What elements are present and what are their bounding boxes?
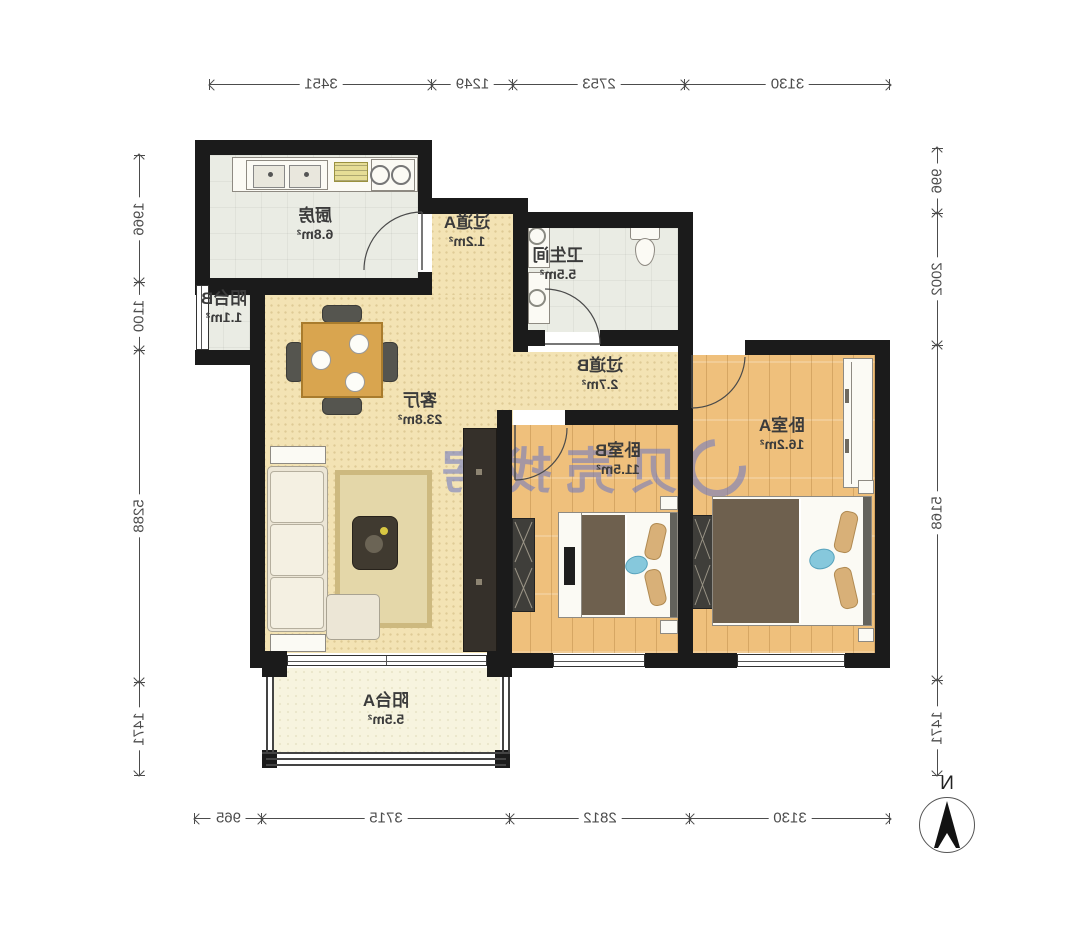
dim-right-4: 1471 (139, 682, 140, 775)
dim-value: 1100 (131, 295, 148, 337)
bedroom-a-nightstand-bottom (858, 628, 874, 642)
bedroom-a-bed (712, 496, 872, 626)
dim-left-2: 2002 (937, 213, 938, 345)
room-area: 23.8m² (370, 411, 470, 429)
room-label-bedroom-b: 卧室B 11.5m² (568, 440, 668, 479)
window-divider (386, 656, 387, 665)
dim-value: 3130 (766, 76, 809, 93)
dim-left-3: 5168 (937, 345, 938, 680)
bed-blanket (579, 515, 627, 615)
sofa-side-table-bottom (270, 634, 326, 652)
bedroom-a-wardrobe-white (843, 358, 873, 488)
room-name: 厨房 (265, 205, 365, 226)
wall-bedroom-a-top (745, 340, 890, 355)
room-label-hallway-b: 过道B 2.7m² (560, 355, 640, 394)
room-label-kitchen: 厨房 6.8m² (265, 205, 365, 244)
tick (932, 345, 943, 346)
coffee-table-dot (380, 527, 388, 535)
dim-value: 2002 (929, 257, 946, 300)
dim-value: 5168 (929, 491, 946, 534)
tv-cabinet-mark-2 (476, 579, 482, 585)
room-area: 16.2m² (732, 436, 832, 454)
room-name: 卧室A (732, 415, 832, 436)
room-area: 1.2m² (427, 233, 507, 251)
window-mullion (738, 661, 844, 662)
wall-balcony-b-bottom (195, 350, 265, 365)
dim-right-1: 1966 (139, 155, 140, 282)
bed-headboard (670, 513, 677, 617)
dim-value: 2812 (578, 810, 621, 827)
dim-value: 1249 (451, 76, 494, 93)
tick (509, 813, 510, 824)
coffee-table-decor (365, 535, 383, 553)
room-area: 6.8m² (265, 226, 365, 244)
bed-pillow-2 (643, 568, 668, 608)
room-name: 卧室B (568, 440, 668, 461)
room-name: 阳台B (184, 288, 264, 309)
burner-2 (370, 165, 390, 185)
balcony-post-right (262, 651, 287, 677)
bedroom-a-nightstand-top (858, 480, 874, 494)
dim-bottom-2: 2812 (510, 818, 690, 819)
room-name: 客厅 (370, 390, 470, 411)
tick (134, 682, 145, 683)
kitchen-grate (334, 162, 368, 182)
tv-cabinet (463, 428, 497, 652)
bed-throw-pillow (807, 545, 838, 572)
tick (932, 213, 943, 214)
dim-top-4: 3451 (210, 84, 432, 85)
dim-bottom-4: 965 (195, 818, 262, 819)
dining-chair-top (322, 305, 362, 323)
bathroom-door-arc (540, 286, 600, 348)
tick (431, 79, 432, 90)
tv-cabinet-mark-1 (476, 469, 482, 475)
wall-bottom-4 (250, 653, 262, 668)
room-label-bathroom: 卫生间 5.5m² (513, 245, 603, 284)
room-name: 过道A (427, 212, 507, 233)
wall-kitchen-right-outer (195, 140, 210, 285)
dim-value: 3451 (299, 76, 342, 93)
dim-value: 2753 (577, 76, 620, 93)
tick (209, 79, 210, 90)
room-name: 过道B (560, 355, 640, 376)
dim-value: 996 (929, 163, 946, 198)
room-label-living-room: 客厅 23.8m² (370, 390, 470, 429)
balcony-rail-right-1 (272, 677, 274, 752)
room-name: 阳台A (336, 690, 436, 711)
floorplan-canvas: 贝壳找房 (0, 0, 1080, 929)
wardrobe-inner-line (851, 362, 852, 484)
tick (512, 79, 513, 90)
balcony-rail-bottom-3 (266, 764, 506, 766)
dim-value: 965 (211, 810, 246, 827)
sofa-cushion-3 (270, 577, 324, 629)
room-label-balcony-a: 阳台A 5.5m² (336, 690, 436, 729)
balcony-post-left (487, 651, 512, 677)
bedroom-a-window (737, 654, 845, 667)
plate-1 (349, 334, 369, 354)
dim-top-2: 2753 (513, 84, 685, 85)
balcony-rail-bottom-2 (266, 758, 506, 760)
room-name: 卫生间 (513, 245, 603, 266)
wardrobe-handle-1 (845, 389, 849, 403)
bed-blanket (713, 499, 801, 623)
balcony-rail-left-2 (502, 677, 504, 752)
compass: N (919, 775, 975, 855)
wall-kitchen-top (195, 140, 432, 155)
room-area: 2.7m² (560, 376, 640, 394)
tick (932, 148, 943, 149)
tick (134, 282, 145, 283)
room-area: 1.1m² (184, 309, 264, 327)
wall-bottom-1 (845, 653, 890, 668)
dim-right-2: 1100 (139, 282, 140, 350)
window-mullion (554, 661, 644, 662)
dim-value: 1966 (131, 197, 148, 240)
plate-2 (311, 350, 331, 370)
dim-top-3: 1249 (432, 84, 513, 85)
tick (134, 350, 145, 351)
bedroom-b-nightstand-top (660, 496, 678, 510)
plate-3 (345, 372, 365, 392)
bedroom-b-nightstand-bottom (660, 620, 678, 634)
wardrobe-handle-2 (845, 439, 849, 453)
dim-bottom-1: 3130 (690, 818, 890, 819)
faucet-dot (304, 172, 309, 177)
tick (889, 79, 890, 90)
wall-bottom-3 (510, 653, 553, 668)
sink-basin (528, 227, 546, 245)
window-mullion (288, 661, 486, 662)
bedroom-b-tv-bench (558, 512, 582, 618)
dim-right-3: 5288 (139, 350, 140, 682)
dim-value: 3130 (768, 810, 811, 827)
wall-right-outer (250, 280, 265, 668)
sofa-cushion-2 (270, 524, 324, 576)
room-area: 5.5m² (513, 266, 603, 284)
compass-needle-notch (938, 833, 956, 848)
tick (134, 775, 145, 776)
dim-value: 1471 (131, 707, 148, 750)
dining-table (301, 322, 383, 398)
wall-bedroom-b-top (565, 410, 693, 425)
wall-bedroom-a-top-stub (678, 340, 690, 355)
sofa (267, 466, 328, 632)
bed-headboard (863, 497, 871, 625)
dim-value: 3715 (364, 810, 407, 827)
bed-pillow-1 (833, 510, 860, 555)
balcony-rail-bottom-1 (262, 752, 510, 754)
balcony-rail-left-1 (508, 677, 510, 752)
tick (194, 813, 195, 824)
wall-bedrooms-divider (678, 212, 693, 668)
dim-left-4: 1471 (937, 680, 938, 775)
wall-left-outer (875, 340, 890, 668)
bedroom-a-wardrobe-dark (692, 515, 713, 609)
room-label-hallway-a: 过道A 1.2m² (427, 212, 507, 251)
burner-1 (391, 165, 411, 185)
compass-north-label: N (919, 773, 975, 795)
room-area: 5.5m² (336, 711, 436, 729)
room-area: 11.5m² (568, 461, 668, 479)
room-label-balcony-b: 阳台B 1.1m² (184, 288, 264, 327)
bedroom-a-door-arc (687, 355, 745, 413)
sofa-side-table-top (270, 446, 326, 464)
room-label-bedroom-a: 卧室A 16.2m² (732, 415, 832, 454)
kitchen-stove (371, 159, 415, 191)
bedroom-b-door-arc (509, 425, 567, 485)
balcony-rail-right-2 (266, 677, 268, 752)
sofa-chaise (326, 594, 380, 640)
coffee-table (352, 516, 398, 570)
bed-pillow-2 (833, 566, 860, 611)
tick (134, 155, 145, 156)
kitchen-sink-unit (246, 160, 328, 190)
sofa-cushion-1 (270, 471, 324, 523)
bedroom-b-wardrobe (512, 518, 535, 612)
bedroom-b-window (553, 654, 645, 667)
kitchen-door-arc (356, 212, 428, 276)
dim-bottom-3: 3715 (262, 818, 510, 819)
dining-chair-bottom (322, 397, 362, 415)
tick (261, 813, 262, 824)
wall-bathroom-top (513, 212, 693, 228)
bedroom-b-tv (564, 547, 575, 585)
tick (684, 79, 685, 90)
bed-pillow-1 (643, 522, 668, 562)
balcony-slider-window (287, 655, 487, 666)
dim-value: 5288 (131, 494, 148, 537)
tick (932, 680, 943, 681)
wall-bottom-2 (645, 653, 737, 668)
faucet-dot-2 (268, 172, 273, 177)
tick (689, 813, 690, 824)
dim-value: 1471 (929, 706, 946, 749)
dim-left-1: 996 (937, 148, 938, 213)
dim-top-1: 3130 (685, 84, 890, 85)
tick (889, 813, 890, 824)
